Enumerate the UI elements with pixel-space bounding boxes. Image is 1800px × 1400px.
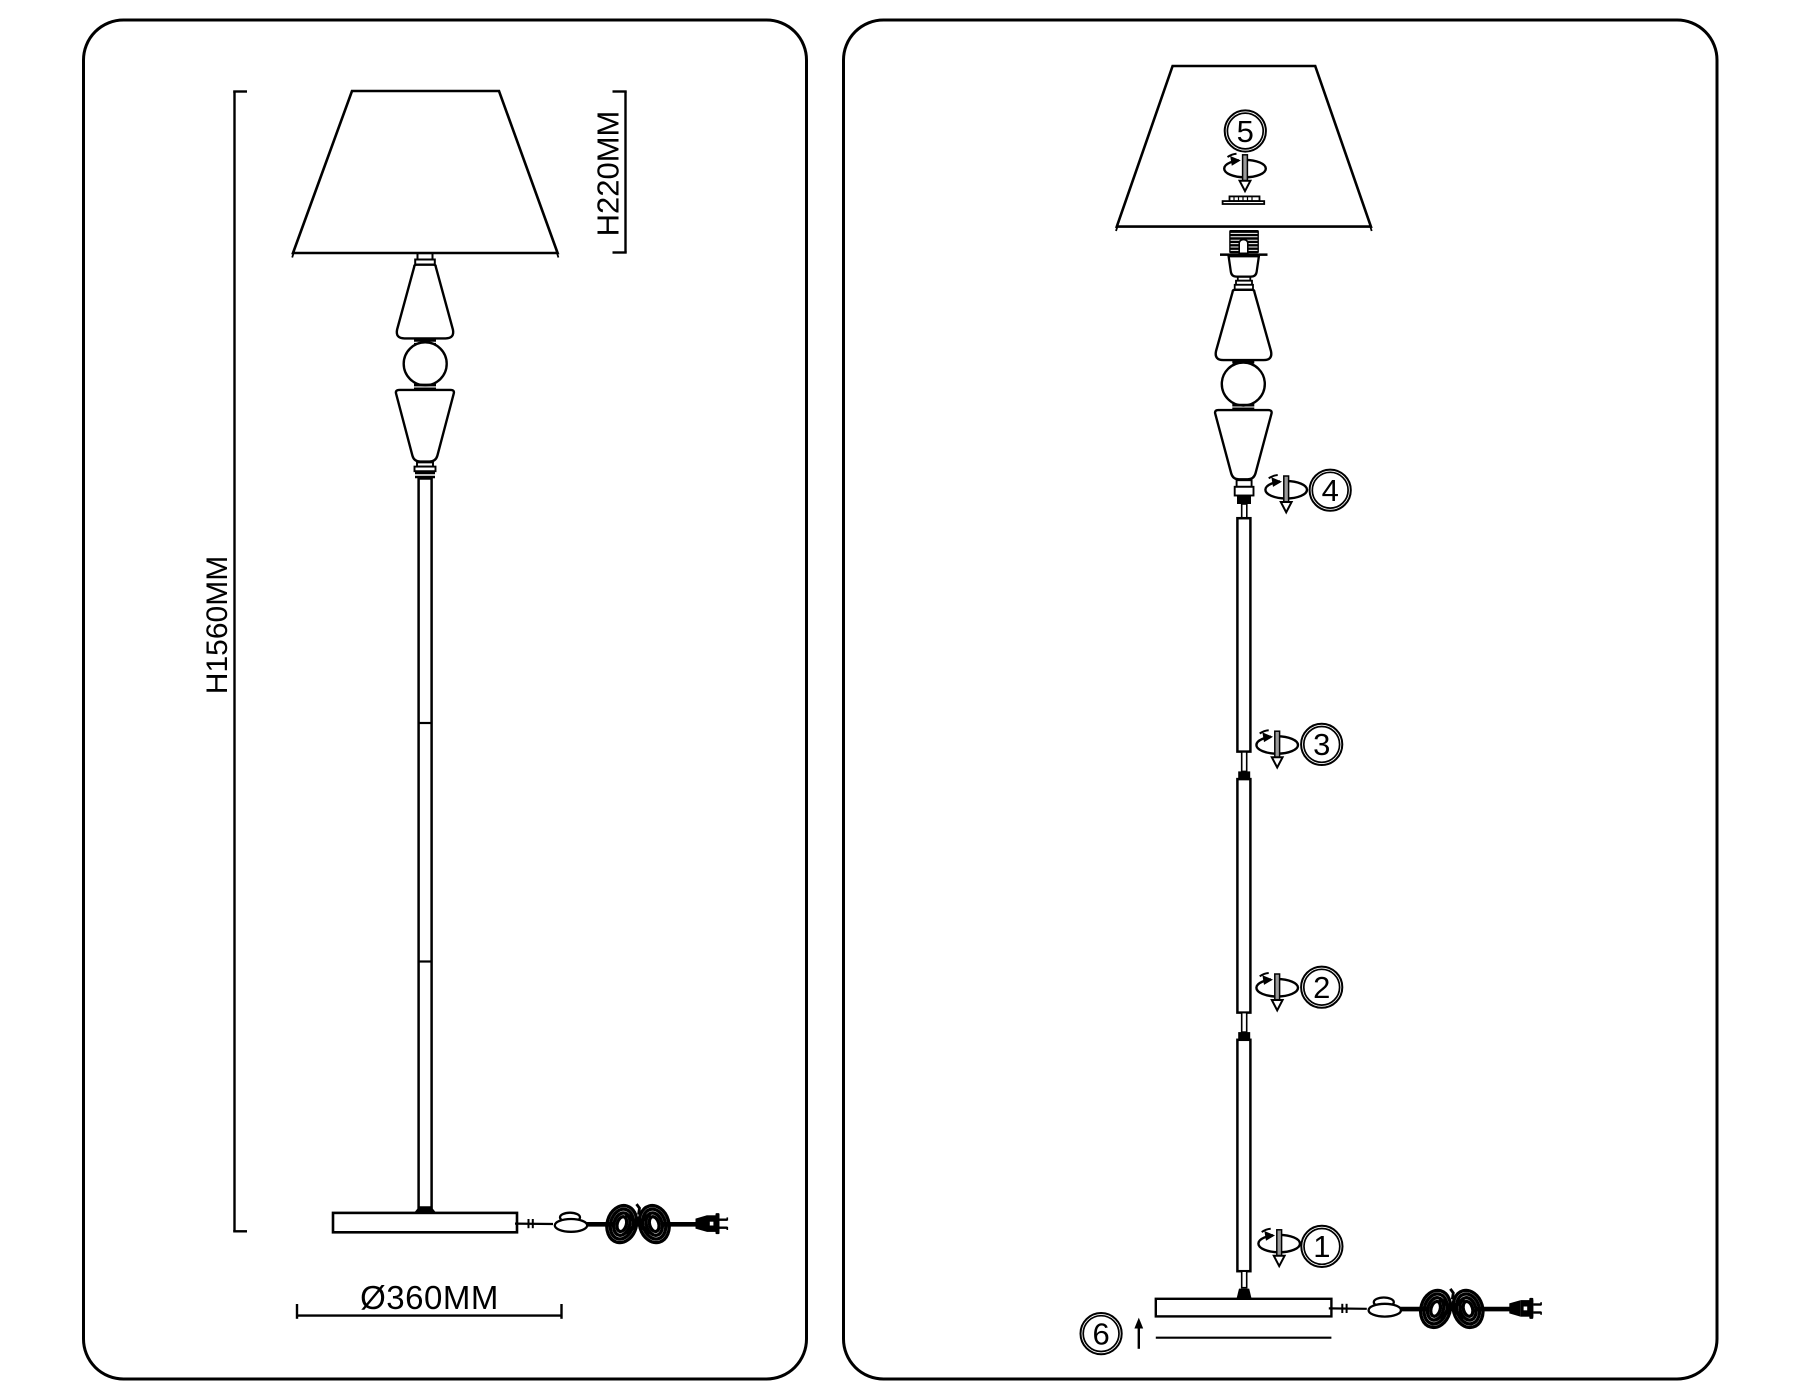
svg-text:6: 6 — [1092, 1316, 1109, 1351]
svg-text:3: 3 — [1313, 727, 1330, 762]
svg-text:Ø360MM: Ø360MM — [360, 1279, 499, 1316]
svg-text:2: 2 — [1313, 970, 1330, 1005]
svg-text:1: 1 — [1313, 1229, 1330, 1264]
svg-text:H220MM: H220MM — [591, 111, 626, 237]
svg-text:5: 5 — [1237, 114, 1254, 149]
svg-text:4: 4 — [1322, 473, 1339, 508]
svg-text:H1560MM: H1560MM — [201, 556, 234, 694]
